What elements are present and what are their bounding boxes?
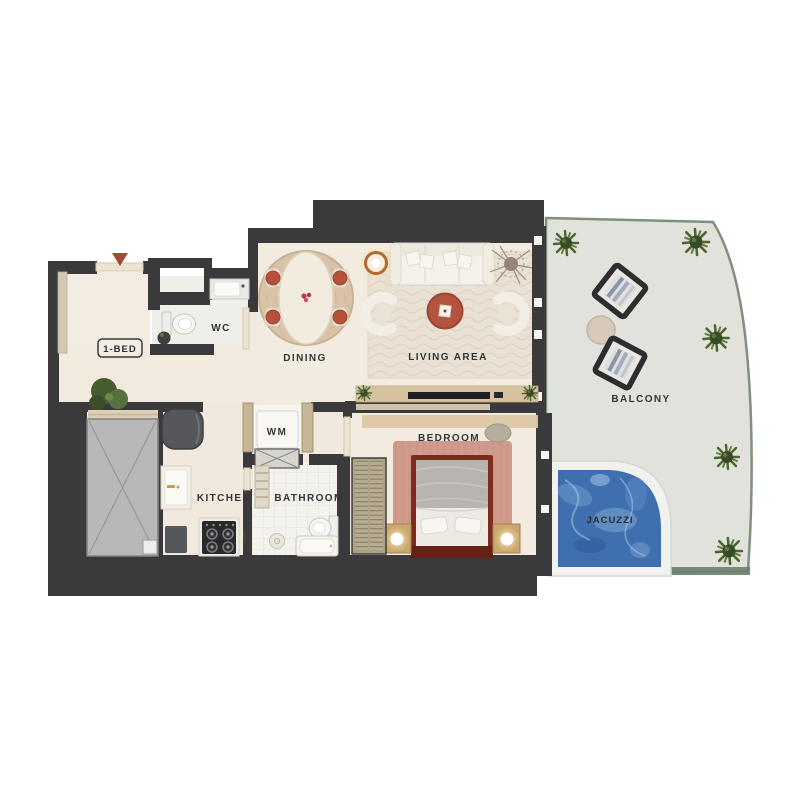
- floor-plan-svg: 1-BED: [0, 0, 800, 800]
- floor-lamp: [357, 244, 395, 282]
- entry-closet: [58, 272, 67, 353]
- unit-badge-label: 1-BED: [103, 344, 137, 355]
- room-label-wc: WC: [211, 323, 230, 334]
- room-label-bathroom: BATHROOM: [274, 493, 343, 504]
- armchair-cushion: [499, 306, 516, 323]
- bedroom-dresser: [362, 415, 538, 428]
- laundry-hatch: [255, 449, 299, 468]
- wm-door-jamb: [243, 403, 253, 452]
- nightstand: [384, 524, 411, 553]
- bedroom-door-leaf: [344, 417, 350, 456]
- coffee-table: [428, 294, 463, 329]
- towel-rack: [255, 466, 269, 508]
- tv-console: [356, 386, 538, 402]
- dining-chair: [331, 268, 349, 288]
- room-label-bedroom: BEDROOM: [418, 433, 480, 444]
- bed: [411, 455, 493, 558]
- room-label-living: LIVING AREA: [408, 352, 487, 363]
- floor-plan-canvas: 1-BED: [0, 0, 800, 800]
- room-label-jacuzzi: JACUZZI: [586, 515, 633, 526]
- plant-icon: [523, 386, 538, 401]
- wm-closet: [255, 411, 299, 468]
- shower-stool: [270, 534, 285, 549]
- tv-screen: [408, 392, 490, 399]
- bathroom-door-leaf: [244, 468, 250, 490]
- bathtub: [296, 536, 338, 556]
- faucet-icon: [167, 485, 175, 488]
- wc-door-leaf: [243, 308, 249, 349]
- plant-icon: [715, 445, 739, 469]
- plant-icon: [716, 538, 742, 564]
- stove: [199, 518, 239, 556]
- sofa: [390, 243, 494, 285]
- unit-badge: 1-BED: [98, 339, 142, 357]
- plant-icon: [160, 333, 164, 337]
- wc-plant-pot: [158, 332, 171, 345]
- media-device: [494, 392, 503, 398]
- kitchen-sink-counter: [161, 466, 191, 509]
- room-label-balcony: BALCONY: [611, 394, 670, 405]
- nightstand: [493, 524, 520, 553]
- wc-sink: [210, 279, 249, 299]
- plant-icon: [554, 231, 578, 255]
- service-shaft: [87, 410, 158, 556]
- dining-chair: [331, 307, 349, 327]
- room-label-dining: DINING: [283, 353, 326, 364]
- decor-bowl: [485, 424, 511, 442]
- room-label-kitchen: KITCHEN: [197, 493, 251, 504]
- plant-icon: [357, 386, 372, 401]
- sliding-door-track: [356, 404, 490, 410]
- armchair-cushion: [375, 306, 392, 323]
- plant-icon: [703, 325, 728, 350]
- plant-icon: [683, 229, 709, 255]
- wm-door-jamb: [302, 403, 313, 452]
- room-label-wm: WM: [267, 427, 288, 438]
- kitchen-cabinet: [165, 526, 187, 553]
- wardrobe: [352, 458, 386, 554]
